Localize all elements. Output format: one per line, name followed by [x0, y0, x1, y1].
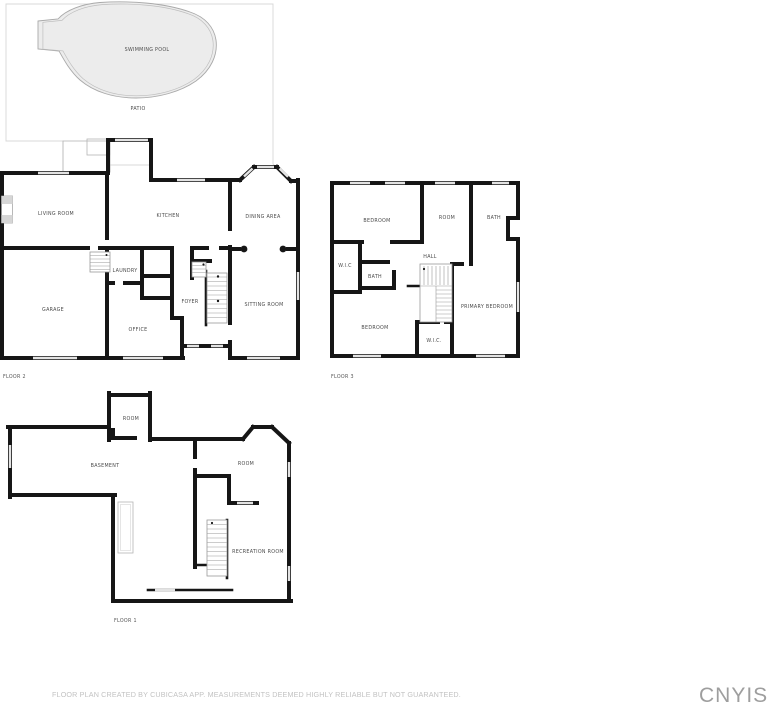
room-label-wic-2: W.I.C.	[426, 338, 441, 344]
room-label-basement: BASEMENT	[91, 463, 120, 469]
room-label-kitchen: KITCHEN	[157, 213, 180, 219]
garage-steps	[90, 252, 110, 272]
patio-label: PATIO	[130, 106, 145, 112]
floor-1-walls	[8, 393, 291, 601]
floor-1-plan: ROOM BASEMENT ROOM RECREATION ROOM FLOOR…	[8, 393, 291, 624]
room-label-office: OFFICE	[129, 327, 148, 333]
column-post	[241, 246, 248, 253]
wall-corner-block	[107, 428, 115, 440]
utility-closet	[118, 502, 133, 553]
floor-3-stairs	[420, 264, 452, 322]
room-label-recreation-room: RECREATION ROOM	[232, 549, 284, 555]
room-label-bath-1: BATH	[487, 215, 501, 221]
fireplace	[2, 196, 13, 223]
room-label-room-f3: ROOM	[439, 215, 455, 221]
floor-2-title: FLOOR 2	[3, 374, 26, 380]
room-label-garage: GARAGE	[42, 307, 64, 313]
floor-1-stairs	[207, 520, 227, 576]
room-label-laundry: LAUNDRY	[113, 268, 138, 274]
floor-2-plan: LIVING ROOM KITCHEN DINING AREA LAUNDRY …	[2, 140, 299, 380]
floor-3-plan: BEDROOM ROOM BATH W.I.C BATH HALL BEDROO…	[331, 183, 518, 380]
room-label-living-room: LIVING ROOM	[38, 211, 74, 217]
room-label-bath-2: BATH	[368, 274, 382, 280]
room-label-primary-bedroom: PRIMARY BEDROOM	[461, 304, 513, 310]
room-label-hall: HALL	[423, 254, 436, 260]
room-label-dining-area: DINING AREA	[245, 214, 281, 220]
porch-outline	[63, 141, 110, 172]
room-label-room-top: ROOM	[123, 416, 139, 422]
column-post	[280, 246, 287, 253]
floor-plan-page: { "page": {"width": 770, "height": 710, …	[0, 0, 770, 710]
watermark-cnyis: CNYIS	[699, 684, 768, 708]
room-label-sitting-room: SITTING ROOM	[244, 302, 283, 308]
floor-1-title: FLOOR 1	[114, 618, 137, 624]
room-label-foyer: FOYER	[181, 299, 198, 305]
swimming-pool-label: SWIMMING POOL	[125, 47, 170, 53]
room-label-wic-1: W.I.C	[338, 263, 352, 269]
floor-3-title: FLOOR 3	[331, 374, 354, 380]
floorplan-canvas: SWIMMING POOL PATIO	[0, 0, 770, 710]
foyer-main-stairs	[207, 273, 227, 323]
foyer-half-stairs	[192, 262, 206, 277]
room-label-bedroom-1: BEDROOM	[363, 218, 390, 224]
room-label-room-right: ROOM	[238, 461, 254, 467]
outdoor-area: SWIMMING POOL PATIO	[6, 2, 277, 180]
room-label-bedroom-2: BEDROOM	[361, 325, 388, 331]
disclaimer-text: FLOOR PLAN CREATED BY CUBICASA APP. MEAS…	[52, 690, 461, 699]
